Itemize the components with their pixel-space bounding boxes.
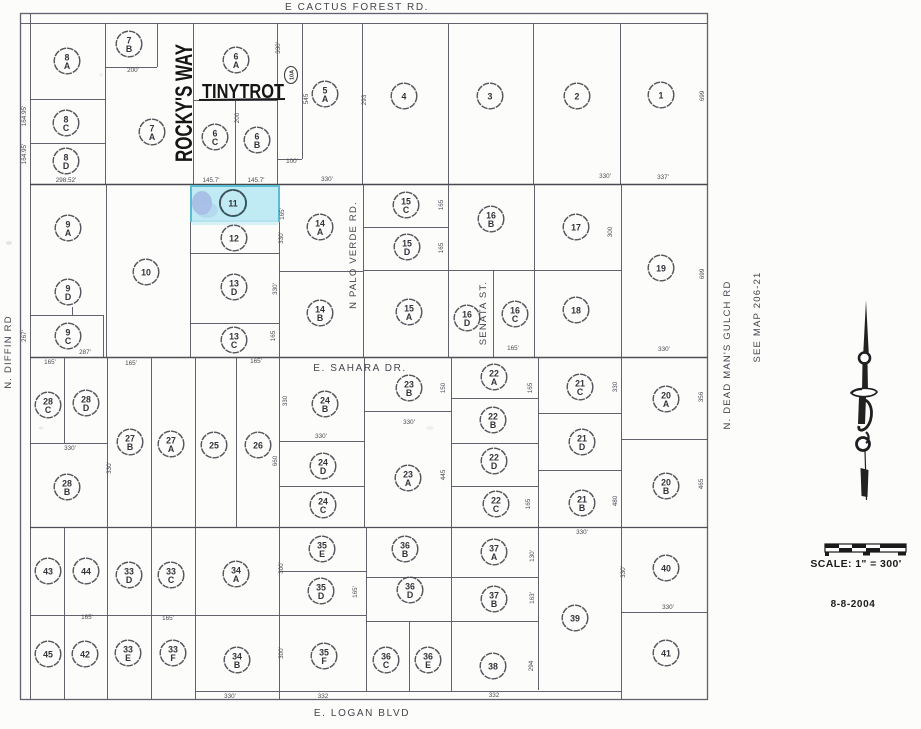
svg-text:42: 42 — [80, 650, 90, 660]
svg-text:165: 165 — [438, 242, 445, 253]
svg-text:330': 330' — [658, 346, 670, 353]
svg-text:330: 330 — [282, 395, 289, 406]
svg-text:B: B — [488, 219, 494, 229]
svg-text:330': 330' — [275, 42, 282, 54]
svg-text:E: E — [319, 549, 325, 559]
svg-text:1: 1 — [659, 91, 664, 101]
svg-text:330': 330' — [278, 232, 285, 244]
svg-text:D: D — [63, 161, 69, 171]
svg-text:164.95': 164.95' — [21, 106, 28, 126]
svg-text:165': 165' — [125, 360, 137, 367]
svg-text:10A: 10A — [290, 70, 296, 80]
svg-text:A: A — [491, 552, 498, 562]
svg-text:N. DEAD MAN'S GULCH RD: N. DEAD MAN'S GULCH RD — [722, 280, 733, 429]
svg-text:F: F — [321, 656, 327, 666]
svg-text:C: C — [63, 123, 70, 133]
svg-text:330': 330' — [315, 433, 327, 440]
svg-text:165: 165 — [527, 382, 534, 393]
svg-text:SEE MAP 206-21: SEE MAP 206-21 — [752, 271, 763, 362]
svg-text:150: 150 — [440, 382, 447, 393]
svg-text:330': 330' — [321, 176, 333, 183]
svg-text:43: 43 — [43, 567, 53, 577]
svg-text:287': 287' — [79, 349, 91, 356]
svg-text:D: D — [126, 575, 132, 585]
svg-text:B: B — [126, 44, 132, 54]
svg-text:699: 699 — [699, 90, 706, 101]
svg-text:C: C — [512, 314, 519, 324]
svg-text:267': 267' — [21, 330, 28, 342]
svg-text:A: A — [317, 227, 324, 237]
svg-text:300': 300' — [278, 562, 285, 574]
svg-text:4: 4 — [402, 92, 407, 102]
svg-text:3: 3 — [488, 92, 493, 102]
svg-text:C: C — [212, 137, 219, 147]
svg-text:D: D — [407, 590, 413, 600]
svg-text:18: 18 — [571, 306, 581, 316]
svg-text:10: 10 — [141, 268, 151, 278]
svg-text:38: 38 — [488, 662, 498, 672]
svg-text:B: B — [317, 313, 323, 323]
svg-text:356: 356 — [698, 391, 705, 402]
svg-text:A: A — [322, 94, 329, 104]
svg-text:B: B — [234, 660, 240, 670]
svg-text:B: B — [406, 388, 412, 398]
svg-text:130': 130' — [529, 550, 536, 562]
svg-text:B: B — [64, 487, 70, 497]
svg-text:100': 100' — [286, 158, 298, 165]
svg-text:164.95': 164.95' — [21, 144, 28, 164]
svg-text:332: 332 — [318, 693, 329, 700]
svg-text:N PALO VERDE RD.: N PALO VERDE RD. — [348, 201, 359, 309]
svg-text:12: 12 — [229, 234, 239, 244]
svg-text:A: A — [149, 132, 156, 142]
svg-text:A: A — [491, 377, 498, 387]
svg-text:C: C — [231, 340, 238, 350]
svg-text:D: D — [318, 591, 324, 601]
svg-text:A: A — [64, 61, 71, 71]
svg-text:D: D — [404, 247, 410, 257]
svg-text:A: A — [663, 399, 670, 409]
svg-text:660: 660 — [272, 455, 279, 466]
svg-text:145.7': 145.7' — [248, 177, 265, 184]
svg-text:A: A — [168, 444, 175, 454]
svg-text:337': 337' — [657, 174, 669, 181]
svg-text:163': 163' — [529, 592, 536, 604]
svg-text:465: 465 — [698, 478, 705, 489]
svg-text:165': 165' — [81, 614, 93, 621]
svg-text:C: C — [577, 387, 584, 397]
svg-text:E. LOGAN BLVD: E. LOGAN BLVD — [314, 708, 410, 719]
svg-text:332: 332 — [489, 692, 500, 699]
svg-text:165': 165' — [352, 586, 359, 598]
svg-text:165': 165' — [44, 359, 56, 366]
svg-text:699: 699 — [699, 268, 706, 279]
svg-text:B: B — [402, 549, 408, 559]
svg-text:41: 41 — [661, 649, 671, 659]
svg-text:330': 330' — [576, 529, 588, 536]
svg-text:445: 445 — [440, 469, 447, 480]
svg-text:A: A — [233, 574, 240, 584]
svg-text:C: C — [493, 504, 500, 514]
svg-text:330': 330' — [403, 419, 415, 426]
svg-text:44: 44 — [81, 567, 91, 577]
svg-text:19: 19 — [656, 264, 666, 274]
svg-text:45: 45 — [43, 650, 53, 660]
svg-text:545: 545 — [303, 93, 310, 104]
svg-text:B: B — [127, 442, 133, 452]
svg-text:330': 330' — [272, 283, 279, 295]
svg-text:330': 330' — [620, 566, 627, 578]
svg-text:A: A — [65, 228, 72, 238]
svg-text:D: D — [579, 442, 585, 452]
svg-text:165': 165' — [507, 345, 519, 352]
svg-text:2: 2 — [575, 92, 580, 102]
svg-text:D: D — [320, 466, 326, 476]
svg-text:165': 165' — [162, 615, 174, 622]
svg-text:E CACTUS FOREST RD.: E CACTUS FOREST RD. — [285, 2, 429, 13]
svg-text:SCALE: 1" = 300': SCALE: 1" = 300' — [810, 558, 901, 570]
svg-text:39: 39 — [570, 614, 580, 624]
svg-text:SENATA ST.: SENATA ST. — [478, 281, 489, 345]
svg-text:330': 330' — [64, 445, 76, 452]
svg-text:298.52': 298.52' — [56, 177, 76, 184]
svg-text:C: C — [45, 405, 52, 415]
svg-text:D: D — [491, 461, 497, 471]
svg-text:C: C — [168, 575, 175, 585]
svg-text:D: D — [65, 292, 71, 302]
svg-text:C: C — [65, 336, 72, 346]
svg-text:D: D — [231, 287, 237, 297]
svg-text:330: 330 — [612, 381, 619, 392]
svg-text:B: B — [322, 404, 328, 414]
svg-text:200': 200' — [127, 67, 139, 74]
svg-text:B: B — [491, 599, 497, 609]
svg-text:D: D — [83, 403, 89, 413]
svg-text:165': 165' — [250, 358, 262, 365]
svg-text:C: C — [320, 505, 327, 515]
svg-text:D: D — [464, 318, 470, 328]
svg-text:B: B — [579, 503, 585, 513]
svg-text:330': 330' — [662, 604, 674, 611]
svg-text:A: A — [233, 60, 240, 70]
svg-text:25: 25 — [209, 441, 219, 451]
svg-text:165: 165 — [525, 498, 532, 509]
svg-text:145.7': 145.7' — [203, 177, 220, 184]
svg-text:N. DIFFIN RD: N. DIFFIN RD — [3, 315, 14, 389]
svg-text:40: 40 — [661, 564, 671, 574]
svg-text:294: 294 — [528, 660, 535, 671]
svg-text:165': 165' — [279, 208, 286, 220]
svg-text:E: E — [125, 653, 131, 663]
svg-text:C: C — [383, 660, 390, 670]
svg-text:8-8-2004: 8-8-2004 — [831, 599, 876, 610]
svg-text:17: 17 — [571, 223, 581, 233]
svg-text:330': 330' — [599, 173, 611, 180]
svg-text:165: 165 — [270, 330, 277, 341]
svg-text:E. SAHARA DR.: E. SAHARA DR. — [313, 363, 407, 374]
svg-text:26: 26 — [253, 441, 263, 451]
svg-text:165: 165 — [438, 199, 445, 210]
svg-text:C: C — [403, 205, 410, 215]
svg-text:293: 293 — [361, 94, 368, 105]
svg-text:A: A — [405, 478, 412, 488]
svg-text:B: B — [490, 420, 496, 430]
svg-text:F: F — [170, 653, 176, 663]
svg-text:B: B — [663, 486, 669, 496]
svg-text:300': 300' — [278, 647, 285, 659]
svg-text:E: E — [425, 660, 431, 670]
svg-text:330': 330' — [106, 462, 113, 474]
svg-text:11: 11 — [228, 199, 237, 209]
svg-text:B: B — [254, 140, 260, 150]
svg-text:200: 200 — [234, 112, 241, 123]
svg-text:480: 480 — [612, 495, 619, 506]
svg-text:300: 300 — [607, 226, 614, 237]
svg-text:330': 330' — [224, 693, 236, 700]
svg-text:A: A — [406, 312, 413, 322]
svg-text:ROCKY'S WAY: ROCKY'S WAY — [171, 44, 198, 162]
